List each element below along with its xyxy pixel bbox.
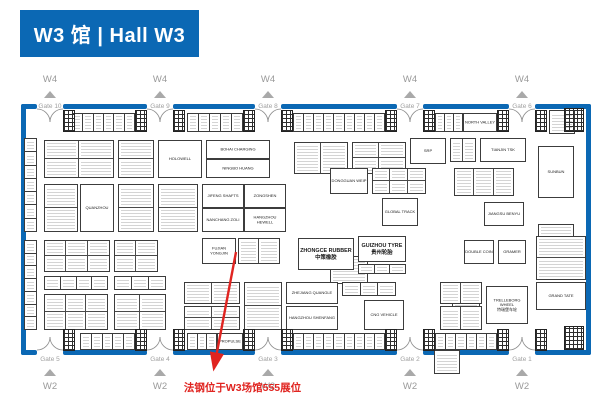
booth [66,295,87,312]
booth-hangzhou_hewell: HANGZHOU HEWELL [244,208,286,232]
booth [334,114,344,131]
booth [140,295,165,312]
booth [79,159,113,177]
booth [185,283,212,303]
booth-block [184,306,240,330]
booth [441,307,461,329]
booth-name: ZHEJIANG QUANGLE [292,291,332,296]
booth-north_valley: NORTH VALLEY [463,113,497,132]
direction-label: W4 [28,74,72,85]
booth [390,169,407,181]
booth [456,334,466,349]
booth-row [114,276,166,290]
booth [434,350,460,374]
booth [390,181,407,193]
booth-row [187,333,217,350]
booth-block [118,140,154,178]
booth [232,114,242,131]
booth [149,277,165,289]
booth [314,114,324,131]
booth [324,114,334,131]
stairs-block [135,110,147,132]
booth-row [435,333,497,350]
booth [334,334,344,349]
booth [66,241,87,256]
hall-title-text: W3 馆 | Hall W3 [34,19,186,48]
booth [375,265,391,273]
arrow-up-icon [262,369,274,376]
booth-block [238,238,280,264]
booth-name: FUJIAN YONGJIN [203,246,235,256]
booth-propulse: PROPULSE [217,333,243,350]
booth [94,114,104,131]
gate-marker-top: W4Gate 8 [246,74,290,110]
booth-zhongce: ZHONGCE RUBBER中策橡胶 [298,238,354,270]
booth-block [440,306,482,330]
gate-label: Gate 2 [388,356,432,363]
direction-label: W2 [28,381,72,392]
booth-block [118,184,154,232]
booth-quanzhou: QUANZHOU [80,184,114,232]
gate-marker-top: W4Gate 10 [28,74,72,110]
booth [25,139,36,152]
booth-name: QUANZHOU [86,206,109,211]
booth-column [24,138,37,232]
booth [345,114,355,131]
booth-name: JIANGSU BENYU [488,212,520,217]
gate-label: Gate 5 [28,356,72,363]
booth [45,141,79,159]
booth-name: HOLOWELL [169,157,191,162]
booth [454,114,462,131]
booth [77,277,93,289]
booth [86,295,107,312]
wall-segment [586,104,591,355]
booth [375,334,384,349]
booth [373,181,390,193]
stairs-block [281,110,293,132]
booth [25,279,36,292]
booth-name: DOUBLE COIN [465,250,493,255]
booth [245,283,281,306]
booth [25,219,36,231]
booth-holowell: HOLOWELL [158,140,202,178]
booth-global_track: GLOBAL TRACK [382,198,418,226]
gate-marker-bottom: Gate 5W2 [28,356,72,392]
booth [304,114,314,131]
booth [45,208,77,231]
booth [119,208,153,231]
stairs-block [243,329,255,351]
booth [140,312,165,329]
booth [92,277,107,289]
booth [390,265,405,273]
booth-name: TIANJIN TSK [491,148,515,153]
booth [221,114,232,131]
booth-row [44,276,108,290]
booth [92,334,103,349]
direction-label: W4 [246,74,290,85]
booth [113,334,124,349]
booth-block [372,168,426,194]
arrow-up-icon [262,91,274,98]
booth-srp: SRP [410,138,446,164]
stairs-block [173,329,185,351]
booth [408,181,425,193]
booth [159,208,197,231]
booth-name: NINGBO HUANG [222,166,253,171]
booth [207,334,216,349]
stairs-block [135,329,147,351]
booth [461,283,481,303]
booth-block [114,294,166,330]
booth [25,305,36,318]
booth-row [358,264,406,274]
booth-column [24,240,37,330]
stairs-block [63,329,75,351]
stairs-block [385,329,397,351]
booth [114,114,124,131]
booth-grand_tate: GRAND TATE [536,282,586,310]
gate-label: Gate 7 [388,103,432,110]
booth [365,334,375,349]
booth [343,283,361,295]
booth-block [536,236,586,280]
booth [379,143,405,158]
booth-block [440,282,482,304]
arrow-up-icon [516,91,528,98]
direction-label: W4 [138,74,182,85]
booth-trelleborg: TRELLEBORG WHEEL特瑞堡车轮 [486,286,528,324]
booth [455,169,474,195]
booth [441,283,461,303]
arrow-up-icon [516,369,528,376]
booth-block [184,282,240,304]
booth-jiangsu_benyu: JIANGSU BENYU [484,202,524,226]
booth-name-cjk: 中策橡胶 [315,254,337,260]
booth [295,143,321,173]
booth [45,256,66,271]
stairs-block [497,110,509,132]
booth-name: TRELLEBORG WHEEL [487,298,527,308]
booth [304,334,314,349]
booth-name: GRAND TATE [548,294,573,299]
booth-dongguan: DONGGUAN WEIP [330,168,368,194]
booth [45,185,77,208]
booth [25,166,36,179]
stairs-block [535,110,547,132]
booth [408,169,425,181]
booth [259,239,279,263]
booth-name: SUNBUN [548,170,565,175]
arrow-up-icon [44,91,56,98]
booth-name: SRP [424,149,432,154]
booth-guizhou: GUIZHOU TYRE贵州轮胎 [358,236,406,262]
gate-marker-bottom: Gate 1W2 [500,356,544,392]
booth-row [435,113,463,132]
booth [199,114,210,131]
booth-nanchang: NANCHANG ZOLI [202,208,244,232]
booth [245,306,281,329]
page-title: W3 馆 | Hall W3 [20,10,199,57]
booth [239,239,259,263]
booth-block [44,140,114,178]
booth [353,143,379,158]
booth [537,258,585,279]
booth-name: GRAMER [503,250,521,255]
booth-tianjin_tsk: TIANJIN TSK [480,138,526,162]
booth-name: NANCHANG ZOLI [207,218,240,223]
booth [115,277,132,289]
booth-name: BOHAI CHARGING [220,147,255,152]
booth [210,114,221,131]
booth [136,241,157,256]
gate-label: Gate 8 [246,103,290,110]
booth [294,114,304,131]
booth [436,114,445,131]
booth [537,237,585,258]
booth [294,334,304,349]
wall-segment [173,104,255,109]
booth-ningbo: NINGBO HUANG [206,159,270,178]
stairs-block [564,108,584,132]
booth [103,334,114,349]
booth [373,169,390,181]
booth [86,312,107,329]
booth [136,256,157,271]
booth [25,254,36,267]
stairs-block [173,110,185,132]
booth [324,334,334,349]
direction-label: W2 [500,381,544,392]
booth-row [72,113,135,132]
gate-label: Gate 6 [500,103,544,110]
booth [45,159,79,177]
gate-label: Gate 9 [138,103,182,110]
booth [212,318,239,329]
booth [359,265,375,273]
stairs-block [564,326,584,350]
booth-name: CNG VEHICLE [370,313,397,318]
booth [25,179,36,192]
booth [445,114,454,131]
booth [188,334,198,349]
stairs-block [423,110,435,132]
booth-cng_vehicle: CNG VEHICLE [364,300,404,330]
booth [132,277,149,289]
booth [446,334,456,349]
gate-marker-top: W4Gate 9 [138,74,182,110]
stairs-block [281,329,293,351]
booth-sunbun: SUNBUN [538,146,574,198]
booth [474,169,493,195]
booth [66,256,87,271]
booth-name: ZONGSHEN [254,194,277,199]
booth [375,114,384,131]
booth-row [187,113,243,132]
gate-label: Gate 1 [500,356,544,363]
booth-hangzhou_shenfang: HANGZHOU SHENFANG [286,306,338,330]
stairs-block [63,110,75,132]
booth [81,334,92,349]
annotation-text: 法钢位于W3场馆555展位 [150,380,335,395]
booth [212,307,239,318]
booth-name: HANGZHOU HEWELL [245,215,285,225]
booth [25,317,36,329]
direction-label: W4 [388,74,432,85]
booth [125,114,134,131]
booth [314,334,324,349]
booth [115,256,136,271]
gate-marker-top: W4Gate 6 [500,74,544,110]
booth [45,312,66,329]
stairs-block [535,329,547,351]
booth-fujian_yongjin: FUJIAN YONGJIN [202,238,236,264]
booth-double_coin: DOUBLE COIN [464,240,494,264]
booth [477,334,487,349]
stairs-block [497,329,509,351]
booth [487,334,496,349]
booth [378,283,395,295]
booth [25,152,36,165]
booth-name-cjk: 贵州轮胎 [371,249,393,255]
booth-block [454,168,514,196]
booth [185,307,212,318]
gate-label: Gate 3 [246,356,290,363]
booth [212,283,239,303]
stairs-block [385,110,397,132]
booth [83,114,93,131]
wall-segment [281,350,397,355]
booth [159,185,197,208]
booth-name: JIFENG SHAFTS [207,194,238,199]
booth [463,139,475,161]
booth-block [44,294,108,330]
booth [467,334,477,349]
arrow-up-icon [154,91,166,98]
booth [25,192,36,205]
booth [461,307,481,329]
booth-zongshen: ZONGSHEN [244,184,286,208]
booth [188,114,199,131]
booth [25,266,36,279]
gate-marker-top: W4Gate 7 [388,74,432,110]
booth [79,141,113,159]
direction-label: W2 [388,381,432,392]
booth [345,334,355,349]
arrow-up-icon [404,91,416,98]
booth [119,185,153,208]
booth [365,114,375,131]
arrow-up-icon [154,369,166,376]
wall-segment [63,104,147,109]
booth-zhejiang_quangle: ZHEJIANG QUANGLE [286,282,338,304]
booth-block [114,240,158,272]
booth [25,292,36,305]
booth [25,205,36,218]
stairs-block [423,329,435,351]
booth [61,277,77,289]
booth [494,169,513,195]
gate-marker-bottom: Gate 2W2 [388,356,432,392]
booth-jifeng: JIFENG SHAFTS [202,184,244,208]
stairs-block [243,110,255,132]
booth-name: DONGGUAN WEIP [332,179,367,184]
booth [451,139,463,161]
booth [104,114,114,131]
booth [45,241,66,256]
booth-name: PROPULSE [219,339,241,344]
booth [436,334,446,349]
booth [88,256,109,271]
booth [88,241,109,256]
arrow-up-icon [404,369,416,376]
arrow-up-icon [44,369,56,376]
booth [355,334,365,349]
booth [198,334,208,349]
floor-plan: W3 馆 | Hall W3 NORTH VALLEYHOLOWELLBOHAI… [0,0,600,407]
gate-label: Gate 10 [28,103,72,110]
booth-gramer: GRAMER [498,240,526,264]
booth [115,295,140,312]
booth-row [80,333,135,350]
booth-bohai: BOHAI CHARGING [206,140,270,159]
booth [119,141,153,159]
booth-block [44,240,110,272]
gate-label: Gate 4 [138,356,182,363]
booth [124,334,134,349]
booth [66,312,87,329]
booth [115,241,136,256]
booth [45,295,66,312]
booth [355,114,365,131]
booth [45,277,61,289]
booth-row [293,333,385,350]
direction-label: W4 [500,74,544,85]
booth-block [44,184,78,232]
booth-name: GLOBAL TRACK [385,210,415,215]
booth [185,318,212,329]
booth-name: NORTH VALLEY [465,120,495,125]
booth [119,159,153,177]
wall-segment [281,104,397,109]
booth [25,241,36,254]
booth [361,283,379,295]
booth [115,312,140,329]
booth-block [158,184,198,232]
booth-row [342,282,396,296]
booth-block [244,282,282,330]
wall-segment [423,104,509,109]
booth-name: HANGZHOU SHENFANG [289,316,335,321]
booth-block [450,138,476,162]
booth-name-cjk: 特瑞堡车轮 [497,307,517,312]
booth-row [293,113,385,132]
